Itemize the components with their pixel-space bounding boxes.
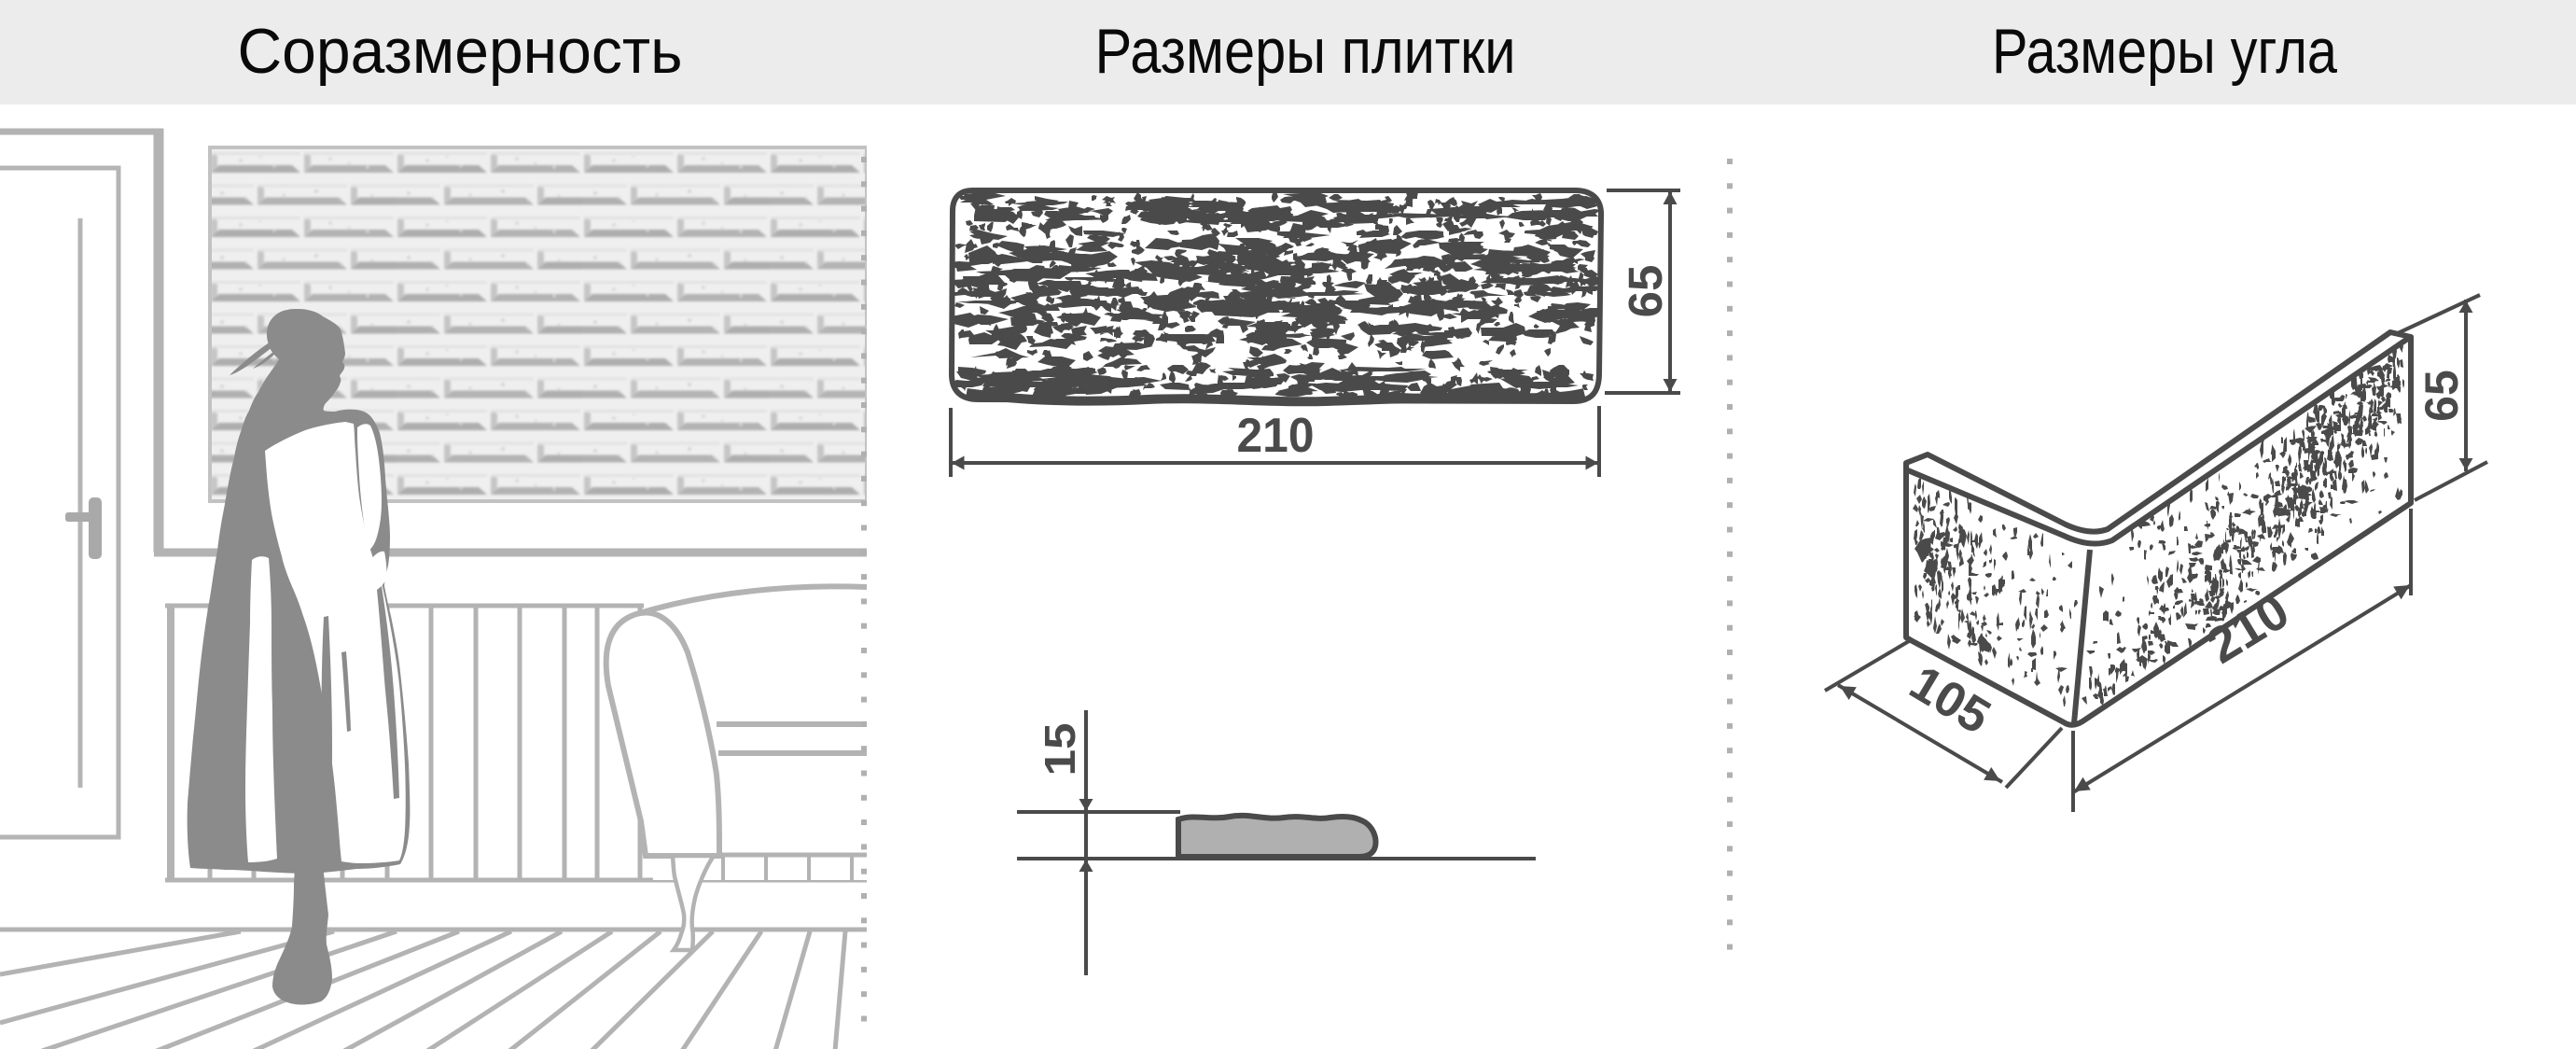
svg-text:210: 210	[1237, 409, 1315, 463]
svg-text:65: 65	[2416, 370, 2468, 422]
svg-text:15: 15	[1036, 723, 1084, 776]
svg-text:65: 65	[1619, 265, 1672, 318]
svg-text:Размеры плитки: Размеры плитки	[1095, 16, 1516, 87]
svg-text:Соразмерность: Соразмерность	[238, 16, 683, 87]
svg-text:Размеры угла: Размеры угла	[1992, 16, 2337, 87]
